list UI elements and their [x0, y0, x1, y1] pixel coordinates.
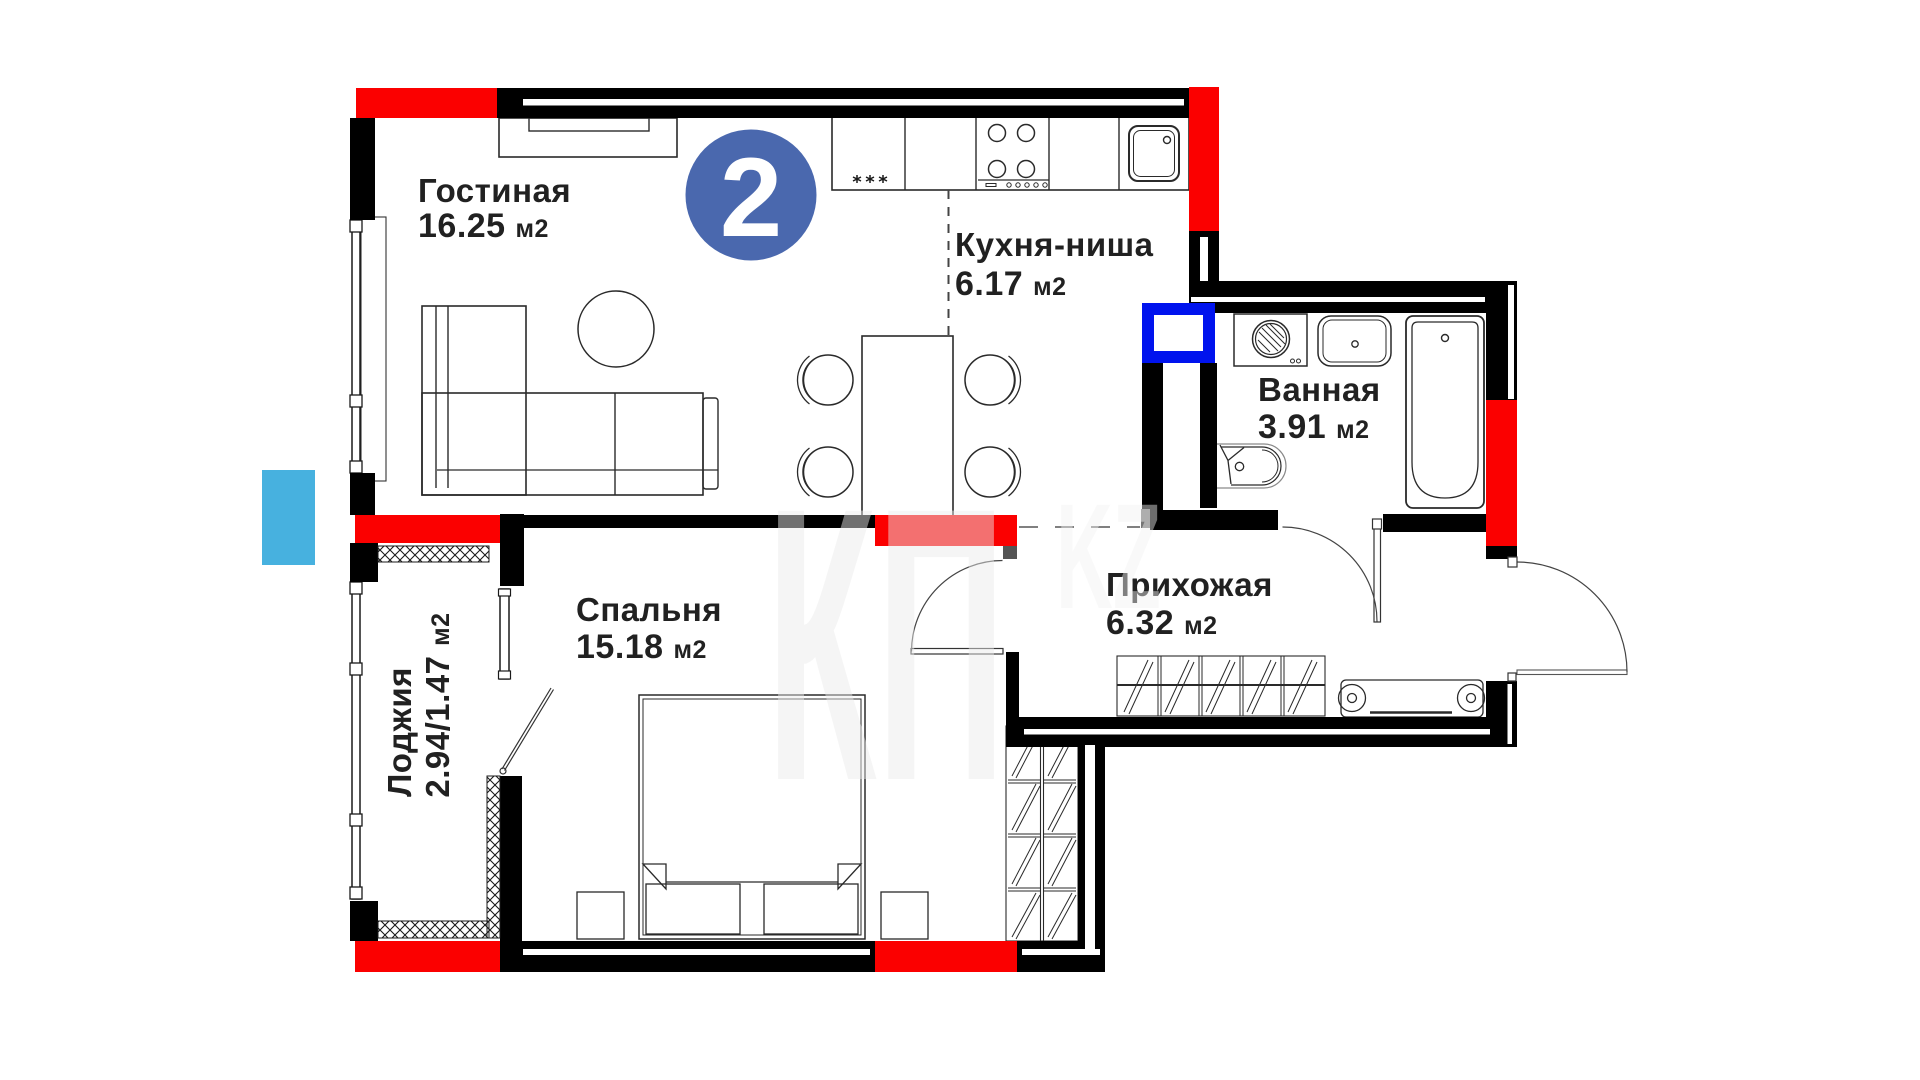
svg-text:2: 2 — [720, 135, 782, 260]
svg-text:Лоджия: Лоджия — [381, 667, 418, 797]
svg-text:КП: КП — [766, 426, 1006, 862]
svg-text:Спальня: Спальня — [576, 591, 722, 628]
svg-text:Ванная: Ванная — [1258, 371, 1381, 408]
svg-text:Кухня-ниша: Кухня-ниша — [955, 226, 1154, 263]
svg-text:Гостиная: Гостиная — [418, 172, 571, 209]
svg-text:KZ: KZ — [1056, 472, 1161, 640]
